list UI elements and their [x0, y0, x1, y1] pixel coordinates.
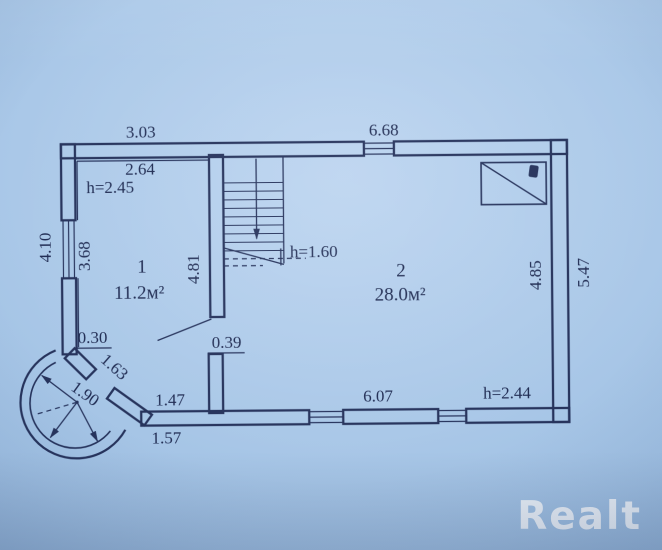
wall-bay-entry-stub [65, 348, 96, 379]
wall-stub-partition [209, 354, 224, 413]
stairs-headroom-label: h=1.60 [290, 242, 338, 261]
door-swing-line [157, 319, 211, 340]
dim-bay-radius: 1.90 [68, 377, 103, 410]
floor-plan-photo: 3.03 6.68 2.64 h=2.45 4.10 3.68 4.81 1 1… [0, 0, 662, 550]
room1-area: 11.2м² [114, 282, 165, 303]
dim-room1-inner-width: 2.64 [125, 160, 155, 179]
wall-bay-diagonal [107, 388, 152, 425]
dim-top-room2: 6.68 [369, 120, 399, 139]
dim-left-outer: 4.10 [36, 233, 55, 263]
dim-left-inner: 3.68 [75, 241, 94, 271]
dim-bay-chord: 1.63 [97, 350, 132, 384]
dim-bay-outer: 1.57 [151, 428, 181, 447]
dim-bottom-room2: 6.07 [363, 386, 393, 405]
window-left [63, 220, 75, 278]
wall-bottom-mid [343, 409, 438, 424]
dim-wall-stub: 0.39 [212, 333, 242, 352]
bay-inner-arc [30, 362, 111, 449]
wall-bottom-left [141, 410, 309, 425]
window-bottom-2 [438, 410, 466, 421]
wall-top-right [394, 140, 567, 156]
wall-left-upper [61, 144, 76, 220]
stair-right-edge [283, 156, 284, 263]
wall-left-lower [62, 278, 77, 354]
dim-right-inner: 4.85 [526, 260, 545, 290]
bay-center-point [75, 401, 78, 404]
wall-right [551, 140, 569, 422]
vent-hatch-icon [481, 162, 546, 205]
dim-right-outer: 5.47 [574, 257, 593, 287]
window-top [364, 143, 394, 154]
stair-treads [223, 182, 284, 251]
room2-ceiling-height: h=2.44 [483, 383, 532, 402]
stair-direction-arrow [256, 159, 257, 239]
floor-plan-drawing: 3.03 6.68 2.64 h=2.45 4.10 3.68 4.81 1 1… [0, 0, 662, 550]
bay-radius-dashed [35, 402, 77, 414]
room1-number: 1 [137, 257, 147, 278]
dim-top-room1: 3.03 [126, 123, 156, 142]
realt-watermark-logo: Realt [517, 497, 642, 536]
wall-stair-partition [209, 155, 224, 317]
bay-radius-arrow-downright [77, 402, 97, 441]
dim-bay-stub: 0.30 [78, 328, 108, 347]
room2-number: 2 [396, 260, 406, 281]
window-bottom-1 [309, 411, 343, 422]
room1-ceiling-height: h=2.45 [86, 178, 134, 197]
room2-area: 28.0м² [375, 284, 426, 305]
dim-bottom-left: 1.47 [155, 390, 185, 409]
dim-stair-wall: 4.81 [184, 254, 203, 284]
labels: 3.03 6.68 2.64 h=2.45 4.10 3.68 4.81 1 1… [35, 119, 595, 449]
bay-radius-arrow-downleft [50, 402, 77, 437]
flue-mark [528, 165, 538, 178]
